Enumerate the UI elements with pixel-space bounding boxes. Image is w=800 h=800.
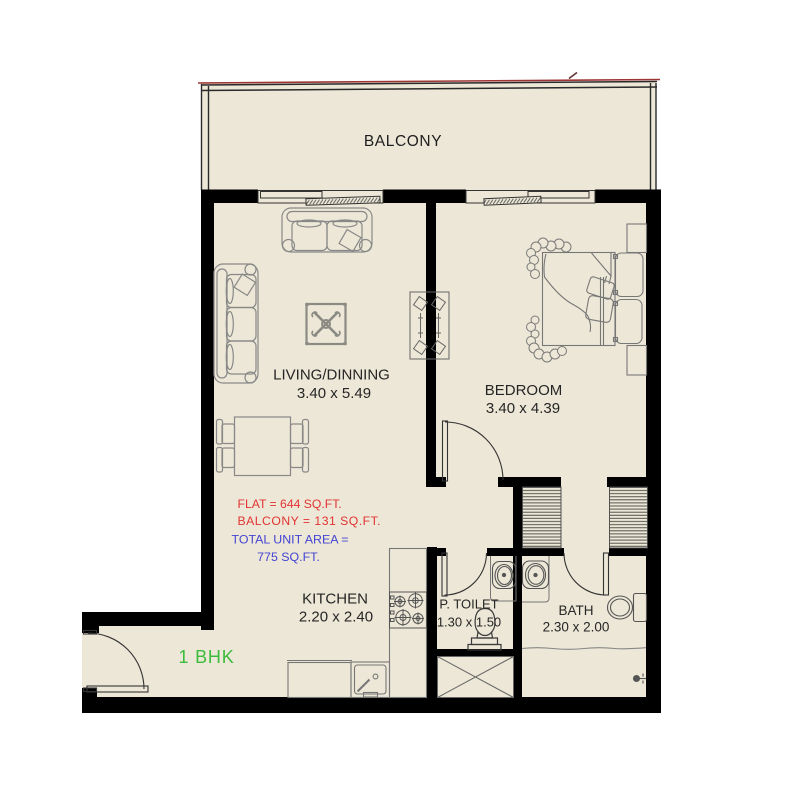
svg-text:BATH: BATH	[558, 603, 593, 618]
svg-text:2.30 x 2.00: 2.30 x 2.00	[543, 620, 610, 635]
svg-text:TOTAL UNIT AREA =: TOTAL UNIT AREA =	[232, 533, 349, 547]
svg-text:775 SQ.FT.: 775 SQ.FT.	[257, 550, 320, 564]
svg-text:1 BHK: 1 BHK	[178, 647, 234, 667]
svg-text:KITCHEN: KITCHEN	[302, 591, 368, 608]
svg-text:P. TOILET: P. TOILET	[439, 597, 498, 612]
svg-text:BALCONY = 131 SQ.FT.: BALCONY = 131 SQ.FT.	[238, 514, 382, 528]
svg-text:1.30 x 1.50: 1.30 x 1.50	[437, 615, 501, 630]
svg-text:LIVING/DINNING: LIVING/DINNING	[273, 367, 390, 384]
svg-text:FLAT = 644 SQ.FT.: FLAT = 644 SQ.FT.	[238, 497, 342, 511]
svg-text:3.40 x 5.49: 3.40 x 5.49	[297, 385, 371, 402]
svg-text:2.20 x 2.40: 2.20 x 2.40	[299, 609, 373, 626]
svg-text:BALCONY: BALCONY	[364, 133, 442, 150]
svg-text:BEDROOM: BEDROOM	[485, 382, 563, 399]
svg-text:3.40 x 4.39: 3.40 x 4.39	[486, 400, 560, 417]
